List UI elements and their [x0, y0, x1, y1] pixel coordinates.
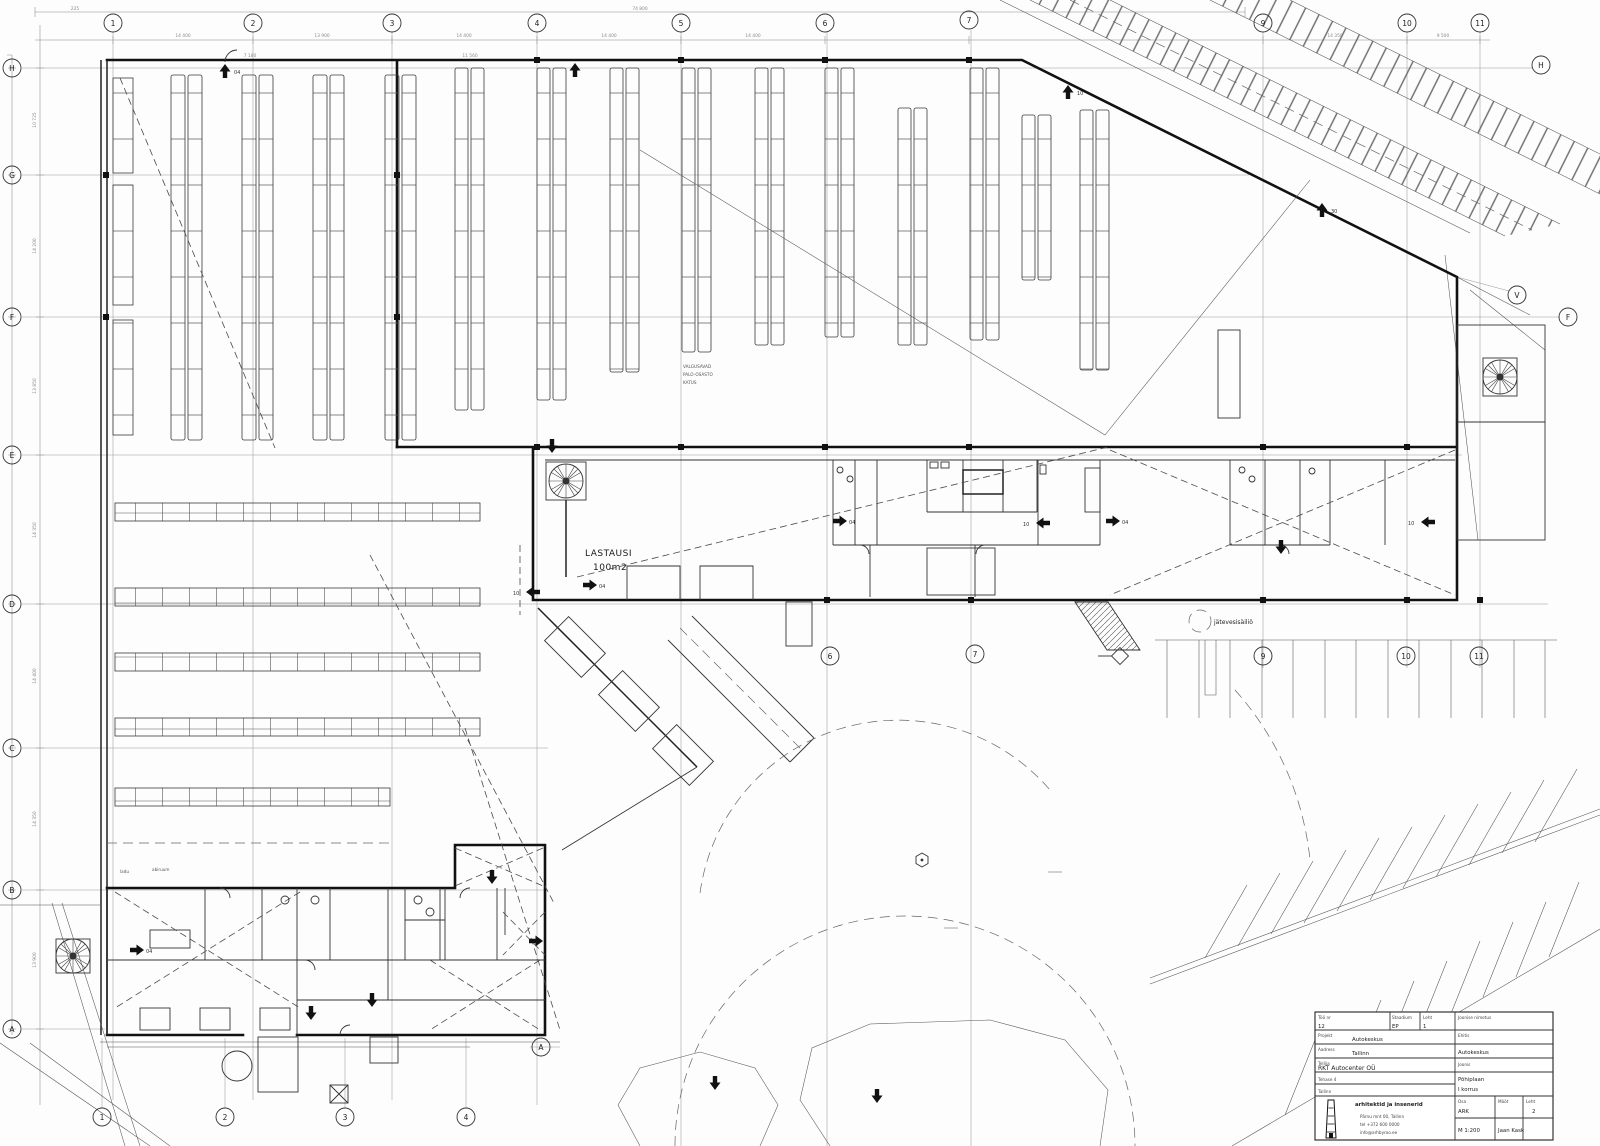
svg-text:H: H — [9, 64, 15, 73]
office-wing-interior — [520, 325, 1545, 615]
svg-text:Tallinn: Tallinn — [1351, 1051, 1369, 1057]
svg-text:13 900: 13 900 — [32, 952, 38, 968]
yard-site — [0, 690, 1310, 1146]
svg-text:11: 11 — [1474, 652, 1484, 661]
grid-bubble: 6 — [816, 14, 834, 32]
svg-text:2: 2 — [223, 1113, 228, 1122]
grid-bubble: 1 — [104, 14, 122, 32]
dim-t2: 13 900 — [314, 33, 330, 39]
svg-text:13 850: 13 850 — [32, 378, 38, 394]
loading-area-size: 100m2 — [593, 563, 627, 573]
dim-t3: 14 400 — [456, 33, 472, 39]
svg-text:4: 4 — [464, 1113, 469, 1122]
grid-bubble: 11 — [1470, 647, 1488, 665]
svg-text:D: D — [9, 600, 15, 609]
floor-plan-canvas: 74 800 225 14 400 13 900 14 400 14 400 1… — [0, 0, 1600, 1146]
svg-text:PALO-OSASTO: PALO-OSASTO — [683, 372, 713, 377]
svg-text:14 350: 14 350 — [32, 811, 38, 827]
svg-text:Mõõt: Mõõt — [1498, 1099, 1509, 1104]
dim-t1: 14 400 — [175, 33, 191, 39]
grid-bubble: 3 — [336, 1108, 354, 1126]
svg-text:Tehase 4: Tehase 4 — [1317, 1077, 1337, 1082]
svg-text:1: 1 — [100, 1113, 105, 1122]
dim-m2: 7 180 — [244, 53, 257, 59]
grid-bubble: 5 — [672, 14, 690, 32]
svg-text:Autokeskus: Autokeskus — [1352, 1037, 1383, 1043]
svg-text:1: 1 — [111, 19, 116, 28]
svg-text:Töö nr: Töö nr — [1317, 1015, 1331, 1020]
svg-text:I korrus: I korrus — [1458, 1087, 1478, 1093]
svg-text:Tallinn: Tallinn — [1317, 1089, 1332, 1094]
svg-text:04: 04 — [599, 584, 605, 590]
svg-text:6: 6 — [823, 19, 828, 28]
svg-text:Jaan Kask: Jaan Kask — [1497, 1128, 1525, 1134]
dim-m1: 11 560 — [462, 53, 478, 59]
svg-text:arhitektid ja insenerid: arhitektid ja insenerid — [1355, 1102, 1423, 1108]
svg-text:E: E — [10, 451, 15, 460]
svg-text:30: 30 — [1331, 209, 1337, 215]
svg-text:2: 2 — [251, 19, 256, 28]
grid-bubble: 11 — [1471, 14, 1489, 32]
svg-text:F: F — [1566, 313, 1570, 322]
svg-text:10 725: 10 725 — [32, 112, 38, 128]
dim-total: 74 800 — [632, 6, 648, 12]
svg-text:11: 11 — [1475, 19, 1485, 28]
svg-text:10: 10 — [513, 591, 519, 597]
svg-text:1: 1 — [1423, 1024, 1426, 1030]
grid-bubble: H — [1532, 56, 1550, 74]
svg-text:EP: EP — [1392, 1024, 1399, 1030]
svg-text:7: 7 — [967, 16, 972, 25]
svg-text:5: 5 — [679, 19, 684, 28]
svg-text:jätevesisäiliö: jätevesisäiliö — [1213, 619, 1253, 626]
svg-text:14 400: 14 400 — [32, 668, 38, 684]
svg-text:F: F — [10, 313, 14, 322]
dim-left-labels: 10 725 14 200 13 850 14 350 14 400 14 35… — [32, 112, 38, 968]
svg-text:04: 04 — [234, 70, 240, 76]
svg-text:04: 04 — [146, 949, 152, 955]
svg-text:2: 2 — [1532, 1109, 1535, 1115]
svg-text:Leht: Leht — [1423, 1015, 1432, 1020]
grid-bubble: V — [1508, 286, 1526, 304]
svg-text:V: V — [1514, 291, 1520, 300]
svg-text:Leht: Leht — [1526, 1099, 1535, 1104]
svg-text:Joonise nimetus: Joonise nimetus — [1457, 1015, 1491, 1020]
svg-text:Joonis: Joonis — [1457, 1062, 1470, 1067]
warehouse-racks-west — [113, 75, 416, 440]
svg-text:14 200: 14 200 — [32, 238, 38, 254]
dim-t7: 9 500 — [1437, 33, 1450, 39]
svg-text:10: 10 — [1077, 91, 1083, 97]
svg-text:Staadium: Staadium — [1392, 1015, 1412, 1020]
dim-t4: 14 400 — [601, 33, 617, 39]
dim-t5: 14 400 — [745, 33, 761, 39]
grid-bubble: 2 — [244, 14, 262, 32]
svg-text:VALGUSAVAD: VALGUSAVAD — [683, 364, 711, 369]
svg-text:Aadress: Aadress — [1318, 1047, 1335, 1052]
svg-text:14 350: 14 350 — [32, 522, 38, 538]
svg-text:tel +372 600 0000: tel +372 600 0000 — [1360, 1122, 1400, 1127]
svg-text:B: B — [9, 886, 14, 895]
svg-text:10: 10 — [1023, 522, 1029, 528]
hall-note: VALGUSAVAD PALO-OSASTO KATUS — [683, 364, 713, 385]
svg-text:7: 7 — [973, 650, 978, 659]
svg-text:Pärnu mnt 00, Tallinn: Pärnu mnt 00, Tallinn — [1360, 1114, 1404, 1119]
svg-text:04: 04 — [849, 520, 855, 526]
svg-text:12: 12 — [1318, 1024, 1325, 1030]
svg-text:info@arhbyroo.ee: info@arhbyroo.ee — [1360, 1130, 1398, 1135]
sewage-tank-label: jätevesisäiliö — [1189, 610, 1253, 632]
grid-bubble: 6 — [821, 647, 839, 665]
warehouse-racks-south — [115, 503, 480, 806]
loading-docks — [545, 602, 1140, 785]
svg-text:Põhiplaan: Põhiplaan — [1458, 1077, 1484, 1083]
svg-text:H: H — [1538, 61, 1544, 70]
grid-bubble: 10 — [1398, 14, 1416, 32]
room-label: abiruum — [152, 867, 170, 872]
grid-bubble: 7 — [960, 11, 978, 29]
grid-bubble: 4 — [528, 14, 546, 32]
svg-text:G: G — [9, 171, 15, 180]
dimension-lines: 74 800 225 14 400 13 900 14 400 14 400 1… — [7, 6, 1490, 1105]
svg-text:M 1:200: M 1:200 — [1458, 1128, 1480, 1134]
svg-text:A: A — [9, 1025, 15, 1034]
svg-text:3: 3 — [343, 1113, 348, 1122]
svg-text:KATUS: KATUS — [683, 380, 697, 385]
svg-text:10: 10 — [1408, 521, 1414, 527]
dim-c1: 225 — [71, 6, 80, 12]
grid-bubble: 10 — [1397, 647, 1415, 665]
title-block: Töö nr12 StaadiumEP Leht1 ProjektAutokes… — [1315, 1012, 1553, 1140]
svg-text:04: 04 — [1122, 520, 1128, 526]
svg-text:Ehitis: Ehitis — [1458, 1033, 1469, 1038]
grid-bubble: 7 — [966, 645, 984, 663]
svg-text:10: 10 — [1401, 652, 1411, 661]
svg-text:10: 10 — [1402, 19, 1412, 28]
svg-text:RKT Autocenter OÜ: RKT Autocenter OÜ — [1318, 1065, 1375, 1072]
svg-text:3: 3 — [390, 19, 395, 28]
room-label: ladu — [120, 869, 129, 874]
svg-text:4: 4 — [535, 19, 540, 28]
svg-text:9: 9 — [1261, 19, 1266, 28]
grid-bubble: 2 — [216, 1108, 234, 1126]
svg-text:6: 6 — [828, 652, 833, 661]
warehouse-racks-north — [455, 68, 1109, 410]
svg-text:C: C — [9, 744, 14, 753]
svg-text:ARK: ARK — [1458, 1109, 1469, 1115]
loading-area-label: LASTAUSI — [585, 549, 632, 559]
grid-bubble: 4 — [457, 1108, 475, 1126]
parking-stalls-wing — [1155, 640, 1557, 718]
grid-bubble: 3 — [383, 14, 401, 32]
svg-text:Projekt: Projekt — [1318, 1033, 1333, 1038]
svg-text:Autokeskus: Autokeskus — [1458, 1050, 1489, 1056]
svg-text:Osa: Osa — [1458, 1099, 1466, 1104]
grid-bubble: F — [1559, 308, 1577, 326]
floor-plan-page: 74 800 225 14 400 13 900 14 400 14 400 1… — [0, 0, 1600, 1146]
grid-bubbles: 1 2 3 4 5 6 7 9 10 11 H G F E D C B A H … — [3, 11, 1577, 1126]
grid-bubble: 1 — [93, 1108, 111, 1126]
svg-text:A: A — [538, 1043, 544, 1052]
svg-text:9: 9 — [1261, 652, 1266, 661]
site-hexagon-symbol — [916, 853, 928, 867]
